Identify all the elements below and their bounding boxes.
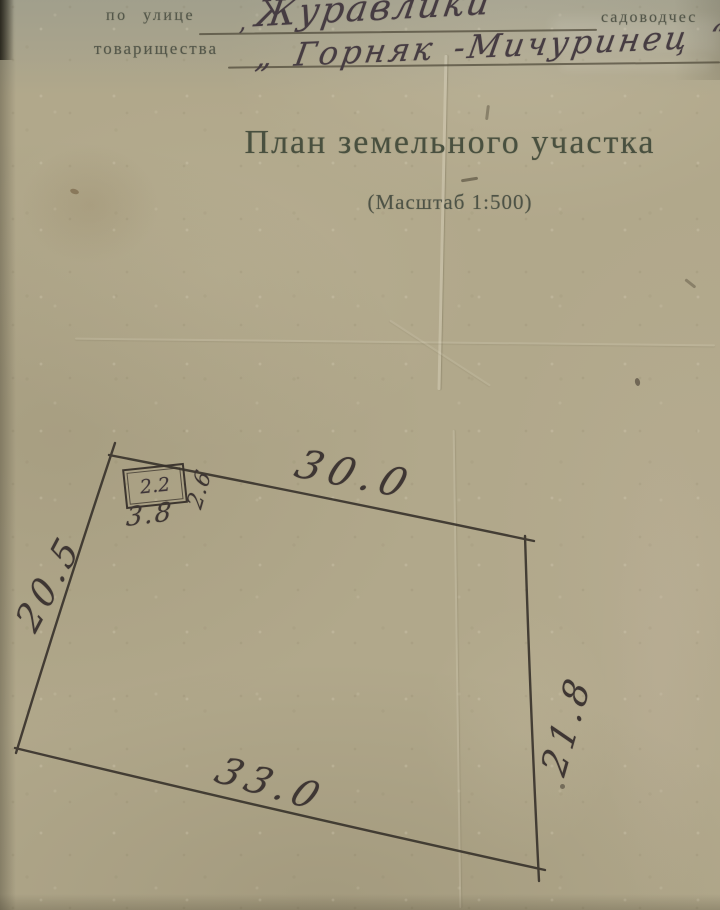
plot-edge-right xyxy=(525,536,539,881)
dimension-building-width: 3.8 xyxy=(125,497,174,533)
